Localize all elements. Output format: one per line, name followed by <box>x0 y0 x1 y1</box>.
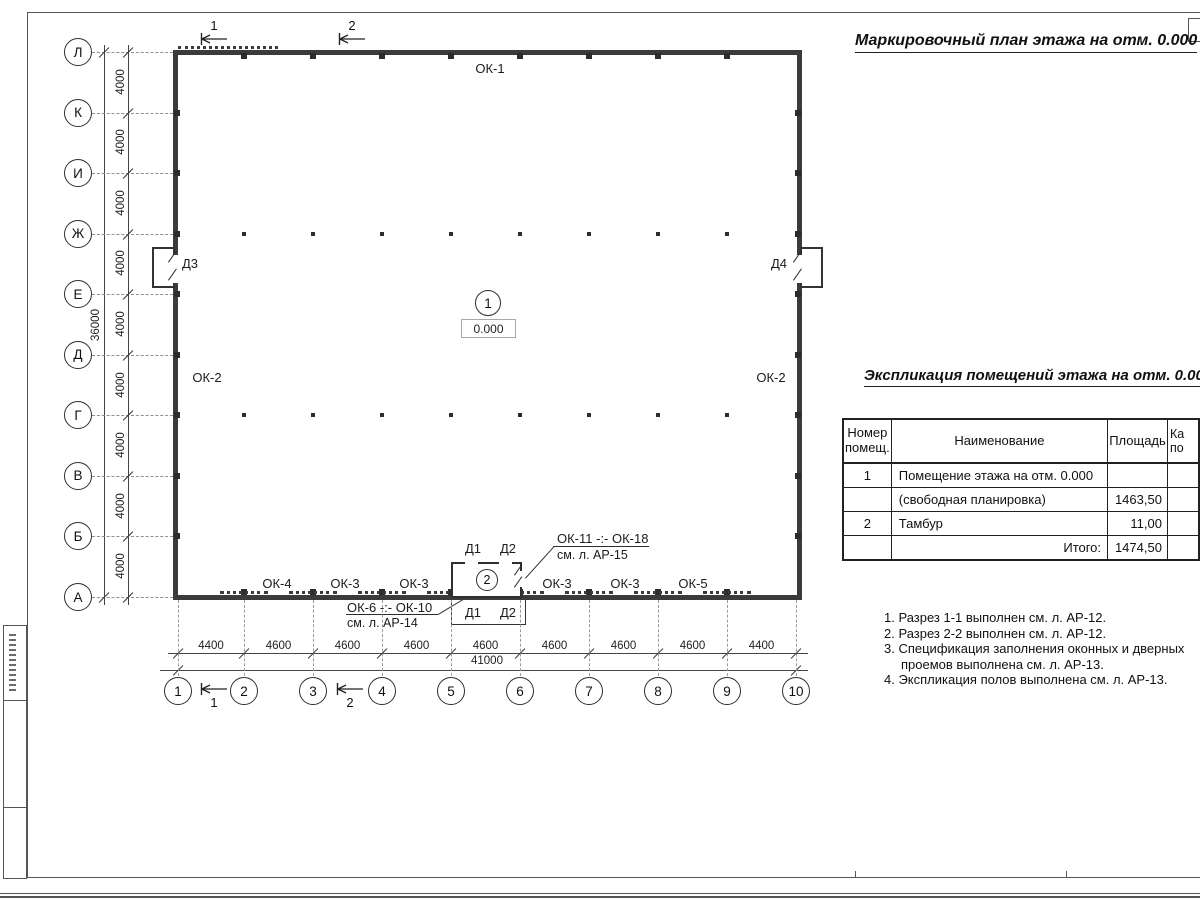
axis-circle-row-Л: Л <box>64 38 92 66</box>
table-cell-area: 1474,50 <box>1108 536 1168 561</box>
interior-column-dot <box>242 232 246 236</box>
col-header-category: Ка по <box>1167 419 1199 463</box>
leader-upper-diagonal <box>525 547 554 579</box>
dim-row-spacing: 4000 <box>115 243 127 283</box>
window-label-bottom: ОК-3 <box>601 576 649 591</box>
column-marker-top-wall <box>310 53 316 59</box>
sheet-bottom-edge <box>0 896 1200 898</box>
interior-column-dot <box>311 232 315 236</box>
axis-line-col <box>382 600 383 676</box>
dim-col-bay: 4600 <box>668 640 718 652</box>
table-cell-number: 2 <box>843 512 891 536</box>
col-header-number: Номер помещ. <box>843 419 891 463</box>
axis-circle-col-5: 5 <box>437 677 465 705</box>
column-marker-left-wall <box>174 473 180 479</box>
axis-circle-col-9: 9 <box>713 677 741 705</box>
axis-line-row <box>92 173 173 174</box>
axis-circle-row-Б: Б <box>64 522 92 550</box>
table-cell-name: Тамбур <box>891 512 1107 536</box>
column-marker-right-wall <box>795 533 801 539</box>
section-mark-2-top-number: 2 <box>343 18 361 33</box>
column-marker-left-wall <box>174 110 180 116</box>
column-marker-left-wall <box>174 231 180 237</box>
wall-top <box>173 50 802 55</box>
axis-circle-col-1: 1 <box>164 677 192 705</box>
column-marker-right-wall <box>795 110 801 116</box>
column-marker-top-wall <box>448 53 454 59</box>
axis-line-row <box>92 294 173 295</box>
axis-circle-row-Г: Г <box>64 401 92 429</box>
section-mark-2-bottom-number: 2 <box>341 695 359 710</box>
column-marker-top-wall <box>379 53 385 59</box>
axis-line-row <box>92 476 173 477</box>
interior-column-dot <box>518 232 522 236</box>
table-cell-category <box>1167 536 1199 561</box>
wall-bottom-window-hatch <box>220 591 268 594</box>
column-marker-right-wall <box>795 170 801 176</box>
window-label-top: ОК-1 <box>465 61 515 76</box>
interior-column-dot <box>725 413 729 417</box>
sheet-frame-top <box>27 12 1200 13</box>
column-marker-top-wall <box>724 53 730 59</box>
vestibule-door-label: Д1 <box>461 541 485 556</box>
interior-column-dot <box>380 413 384 417</box>
axis-line-row <box>92 415 173 416</box>
column-marker-right-wall <box>795 473 801 479</box>
interior-column-dot <box>518 413 522 417</box>
dim-col-bay: 4400 <box>186 640 236 652</box>
table-cell-category <box>1167 512 1199 536</box>
column-marker-right-wall <box>795 291 801 297</box>
dim-line-horizontal-bays <box>168 653 808 654</box>
table-cell-area: 1463,50 <box>1108 488 1168 512</box>
table-cell-area <box>1108 463 1168 488</box>
window-label-bottom: ОК-3 <box>533 576 581 591</box>
wall-bottom-window-hatch <box>634 591 682 594</box>
axis-line-col <box>658 600 659 676</box>
interior-column-dot <box>587 232 591 236</box>
wall-left <box>173 50 178 600</box>
room-mark-vestibule: 2 <box>476 569 498 591</box>
interior-column-dot <box>242 413 246 417</box>
window-label-right: ОК-2 <box>748 370 794 385</box>
interior-column-dot <box>656 232 660 236</box>
axis-circle-col-3: 3 <box>299 677 327 705</box>
dim-col-bay: 4600 <box>254 640 304 652</box>
axis-circle-col-10: 10 <box>782 677 810 705</box>
table-cell-category <box>1167 463 1199 488</box>
dim-col-bay: 4600 <box>392 640 442 652</box>
axis-circle-row-Е: Е <box>64 280 92 308</box>
note-item: 3. Спецификация заполнения оконных и две… <box>884 641 1200 672</box>
axis-line-row <box>92 536 173 537</box>
column-marker-top-wall <box>655 53 661 59</box>
axis-circle-col-8: 8 <box>644 677 672 705</box>
sheet-frame-bottom <box>3 877 1200 878</box>
titleblock-tick-2 <box>1066 871 1067 877</box>
drawing-sheet: Маркировочный план этажа на отм. 0.000 Э… <box>0 0 1200 900</box>
level-mark-value: 0.000 <box>473 322 503 336</box>
wall-bottom-window-hatch <box>289 591 337 594</box>
axis-line-col <box>520 600 521 676</box>
dim-line-vertical-total <box>104 45 105 605</box>
wall-right <box>797 50 802 600</box>
table-cell-number: 1 <box>843 463 891 488</box>
axis-circle-row-Ж: Ж <box>64 220 92 248</box>
axis-line-col <box>451 600 452 676</box>
interior-column-dot <box>587 413 591 417</box>
vestibule-door-gap-2 <box>499 560 512 566</box>
interior-column-dot <box>311 413 315 417</box>
level-mark-box: 0.000 <box>461 319 516 338</box>
wall-bottom-window-hatch <box>565 591 613 594</box>
column-marker-top-wall <box>241 53 247 59</box>
column-marker-right-wall <box>795 231 801 237</box>
leader-upper-shelf <box>553 546 649 547</box>
section-mark-1-top-number: 1 <box>205 18 223 33</box>
dim-col-bay: 4600 <box>530 640 580 652</box>
column-marker-left-wall <box>174 533 180 539</box>
axis-circle-row-В: В <box>64 462 92 490</box>
explication-title: Экспликация помещений этажа на отм. 0.00… <box>864 367 1200 387</box>
notes-list: 1. Разрез 1-1 выполнен см. л. АР-12.2. Р… <box>884 610 1200 688</box>
dim-total-horizontal: 41000 <box>452 655 522 667</box>
axis-circle-row-Д: Д <box>64 341 92 369</box>
window-label-bottom: ОК-3 <box>321 576 369 591</box>
titleblock-tick-1 <box>855 871 856 877</box>
stamp-side-text <box>9 633 16 691</box>
window-label-bottom: ОК-5 <box>669 576 717 591</box>
vestibule-door-label: Д1 <box>461 605 485 620</box>
interior-column-dot <box>656 413 660 417</box>
axis-line-col <box>178 600 179 676</box>
table-cell-category <box>1167 488 1199 512</box>
axis-line-row <box>92 234 173 235</box>
wall-bottom-window-hatch <box>703 591 751 594</box>
section-mark-1-top-arrow-icon <box>199 31 229 47</box>
dim-total-vertical: 36000 <box>90 300 102 350</box>
interior-column-dot <box>725 232 729 236</box>
table-cell-number <box>843 536 891 561</box>
section-mark-2-top-arrow-icon <box>337 31 367 47</box>
axis-circle-col-2: 2 <box>230 677 258 705</box>
dim-col-bay: 4600 <box>323 640 373 652</box>
axis-line-row <box>92 113 173 114</box>
room-mark-main: 1 <box>475 290 501 316</box>
axis-line-row <box>92 355 173 356</box>
window-label-bottom: ОК-4 <box>253 576 301 591</box>
col-header-name: Наименование <box>891 419 1107 463</box>
axis-circle-col-7: 7 <box>575 677 603 705</box>
table-cell-number <box>843 488 891 512</box>
table-cell-name: Итого: <box>891 536 1107 561</box>
axis-circle-row-К: К <box>64 99 92 127</box>
column-marker-left-wall <box>174 352 180 358</box>
column-marker-top-wall <box>517 53 523 59</box>
dim-col-bay: 4600 <box>599 640 649 652</box>
interior-column-dot <box>449 413 453 417</box>
column-marker-left-wall <box>174 291 180 297</box>
column-marker-right-wall <box>795 352 801 358</box>
vestibule-door-gap-1 <box>465 560 478 566</box>
column-marker-left-wall <box>174 170 180 176</box>
dim-row-spacing: 4000 <box>115 425 127 465</box>
sheet-frame-left <box>27 12 28 878</box>
axis-line-col <box>589 600 590 676</box>
axis-line-col <box>313 600 314 676</box>
sheet-bottom-line <box>0 893 1200 894</box>
table-cell-name: Помещение этажа на отм. 0.000 <box>891 463 1107 488</box>
table-header-row: Номер помещ. Наименование Площадь Ка по <box>843 419 1199 463</box>
axis-line-col <box>244 600 245 676</box>
dim-col-bay: 4400 <box>737 640 787 652</box>
axis-line-col <box>796 600 797 676</box>
interior-column-dot <box>380 232 384 236</box>
dim-line-horizontal-total <box>160 670 808 671</box>
explication-table: Номер помещ. Наименование Площадь Ка по … <box>842 418 1200 561</box>
table-row: 2Тамбур11,00 <box>843 512 1199 536</box>
table-row: 1Помещение этажа на отм. 0.000 <box>843 463 1199 488</box>
window-label-left: ОК-2 <box>184 370 230 385</box>
axis-circle-row-А: А <box>64 583 92 611</box>
dim-line-vertical-bays <box>128 45 129 605</box>
axis-circle-col-4: 4 <box>368 677 396 705</box>
dim-col-bay: 4600 <box>461 640 511 652</box>
leader-upper-ref: см. л. АР-15 <box>557 548 628 562</box>
column-marker-left-wall <box>174 412 180 418</box>
stamp-strip-divider-1 <box>3 700 27 701</box>
axis-circle-col-6: 6 <box>506 677 534 705</box>
section-mark-1-bottom-number: 1 <box>205 695 223 710</box>
note-item: 1. Разрез 1-1 выполнен см. л. АР-12. <box>884 610 1200 626</box>
dim-row-spacing: 4000 <box>115 486 127 526</box>
vestibule-door-label: Д2 <box>496 605 520 620</box>
wall-bottom-window-hatch <box>358 591 406 594</box>
dim-row-spacing: 4000 <box>115 122 127 162</box>
table-row: (свободная планировка)1463,50 <box>843 488 1199 512</box>
column-marker-right-wall <box>795 412 801 418</box>
table-row: Итого:1474,50 <box>843 536 1199 561</box>
dim-row-spacing: 4000 <box>115 62 127 102</box>
note-item: 2. Разрез 2-2 выполнен см. л. АР-12. <box>884 626 1200 642</box>
door-d3-label: Д3 <box>182 256 198 271</box>
dim-row-spacing: 4000 <box>115 304 127 344</box>
interior-column-dot <box>449 232 453 236</box>
window-label-bottom: ОК-3 <box>390 576 438 591</box>
vestibule-door-label: Д2 <box>496 541 520 556</box>
stamp-strip-divider-2 <box>3 807 27 808</box>
axis-line-col <box>727 600 728 676</box>
dim-row-spacing: 4000 <box>115 546 127 586</box>
column-marker-top-wall <box>586 53 592 59</box>
plan-title: Маркировочный план этажа на отм. 0.000 <box>855 32 1197 53</box>
note-item: 4. Экспликация полов выполнена см. л. АР… <box>884 672 1200 688</box>
table-cell-area: 11,00 <box>1108 512 1168 536</box>
door-d4-label: Д4 <box>764 256 794 271</box>
col-header-area: Площадь <box>1108 419 1168 463</box>
leader-upper-range: ОК-11 -:- ОК-18 <box>557 531 648 546</box>
axis-circle-row-И: И <box>64 159 92 187</box>
dim-row-spacing: 4000 <box>115 365 127 405</box>
leader-lower-range: ОК-6 -:- ОК-10 <box>347 600 432 615</box>
table-cell-name: (свободная планировка) <box>891 488 1107 512</box>
dim-row-spacing: 4000 <box>115 183 127 223</box>
